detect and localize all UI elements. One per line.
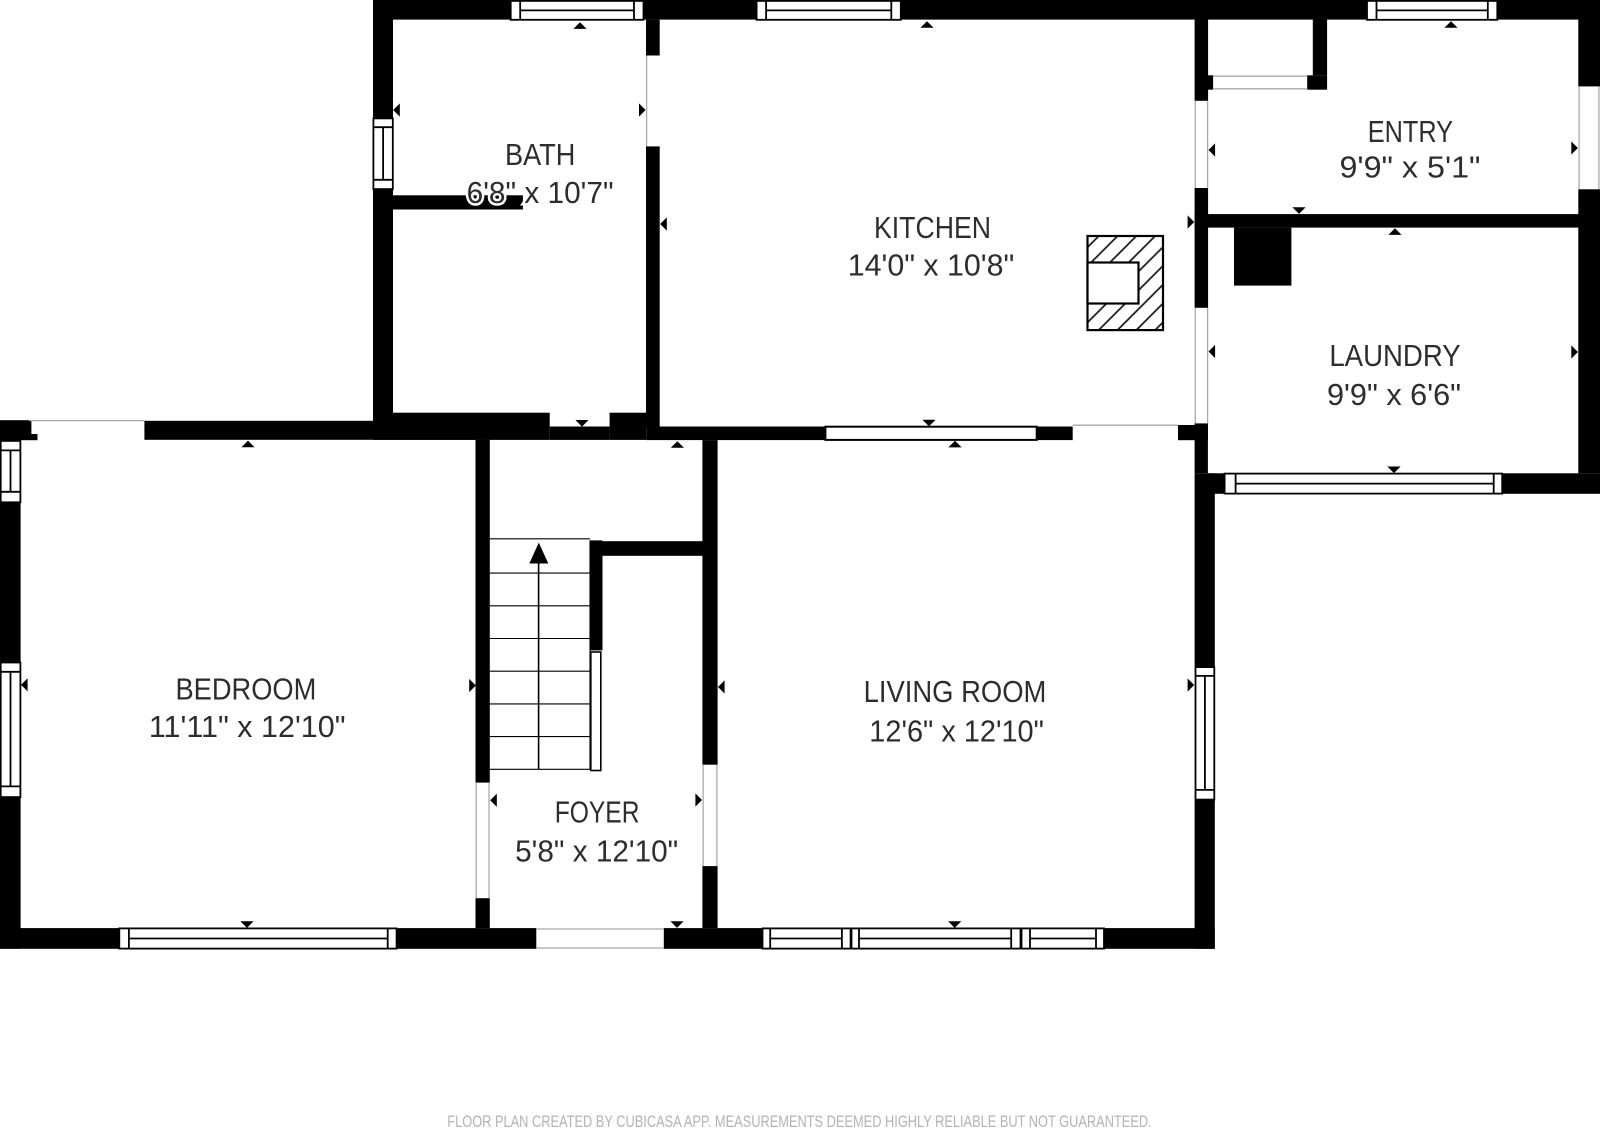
svg-text:FOYER: FOYER: [555, 794, 640, 829]
svg-text:14'0" x 10'8": 14'0" x 10'8": [848, 247, 1015, 282]
svg-text:KITCHEN: KITCHEN: [874, 210, 991, 245]
svg-text:FLOOR PLAN CREATED BY CUBICASA: FLOOR PLAN CREATED BY CUBICASA APP. MEAS…: [447, 1112, 1151, 1129]
svg-text:9'9" x 5'1": 9'9" x 5'1": [1340, 149, 1481, 184]
svg-text:BEDROOM: BEDROOM: [175, 672, 316, 707]
svg-text:12'6" x 12'10": 12'6" x 12'10": [869, 713, 1044, 748]
svg-text:LAUNDRY: LAUNDRY: [1329, 338, 1460, 373]
svg-text:LIVING ROOM: LIVING ROOM: [864, 674, 1047, 709]
svg-text:6'8" x 10'7": 6'8" x 10'7": [467, 175, 614, 210]
svg-text:5'8" x 12'10": 5'8" x 12'10": [515, 834, 678, 869]
svg-text:9'9" x 6'6": 9'9" x 6'6": [1327, 377, 1461, 412]
svg-text:11'11" x 12'10": 11'11" x 12'10": [149, 709, 346, 744]
svg-text:BATH: BATH: [505, 137, 575, 172]
svg-text:ENTRY: ENTRY: [1368, 114, 1453, 149]
